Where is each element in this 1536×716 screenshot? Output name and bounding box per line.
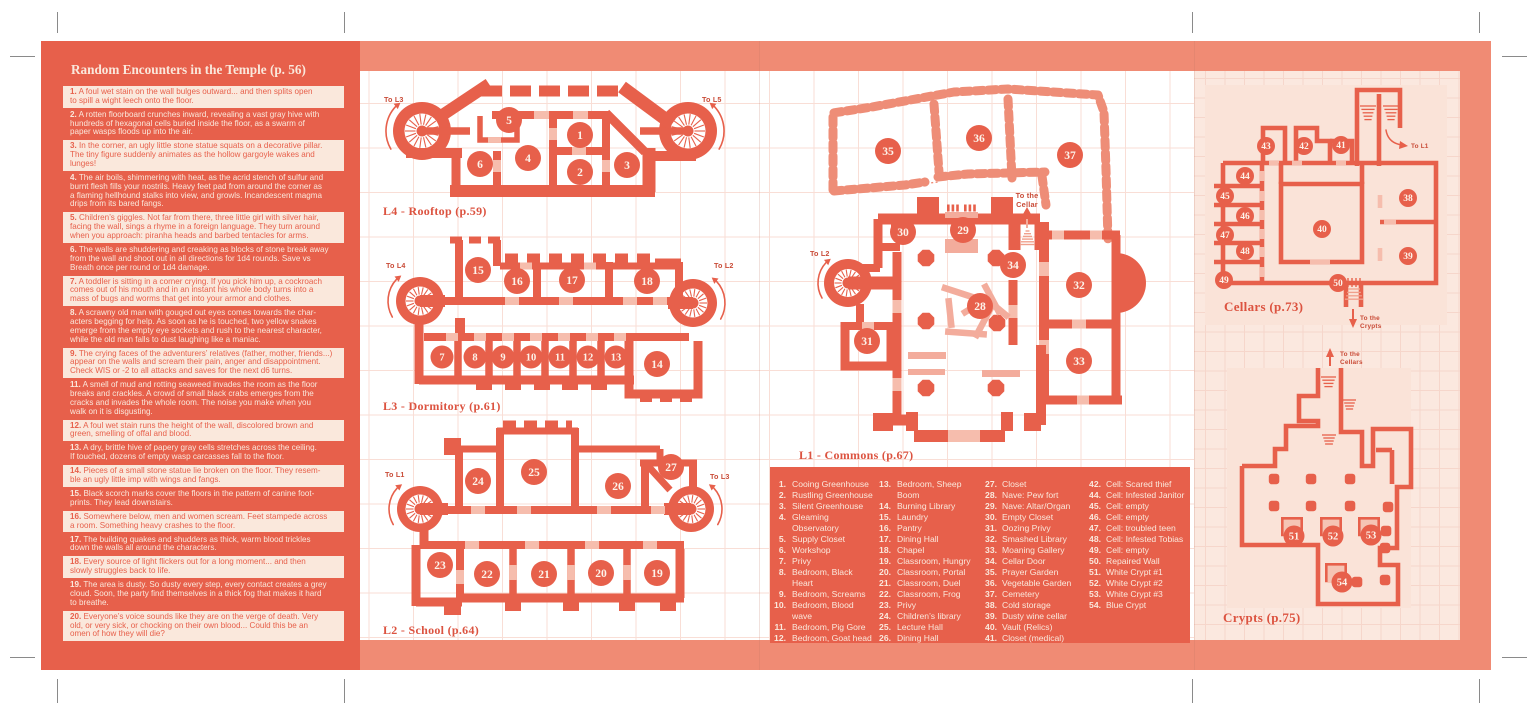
svg-text:7: 7 [439,353,444,364]
svg-text:34: 34 [1007,259,1019,272]
svg-text:50: 50 [1333,279,1343,289]
svg-text:8: 8 [472,353,477,364]
svg-text:37: 37 [1064,149,1076,162]
svg-text:23: 23 [434,559,446,572]
svg-text:21: 21 [538,568,550,581]
svg-text:6: 6 [477,158,483,171]
svg-text:25: 25 [528,466,540,479]
svg-text:To L4: To L4 [386,261,406,270]
svg-text:To L3: To L3 [710,472,730,481]
svg-text:12: 12 [583,353,594,364]
svg-text:33: 33 [1073,355,1085,368]
svg-text:15: 15 [472,264,484,277]
svg-text:2: 2 [577,166,583,179]
svg-text:16: 16 [511,275,523,288]
svg-text:11: 11 [555,353,565,364]
svg-text:54: 54 [1337,578,1348,589]
svg-text:49: 49 [1219,276,1229,286]
svg-text:3: 3 [624,159,630,172]
svg-text:44: 44 [1240,172,1250,182]
svg-text:To L1: To L1 [1411,143,1429,150]
svg-text:5: 5 [506,114,512,127]
svg-text:To the: To the [1360,315,1380,322]
svg-text:32: 32 [1073,279,1085,292]
svg-text:To L2: To L2 [810,249,830,258]
svg-text:14: 14 [651,358,663,371]
svg-text:4: 4 [525,152,531,165]
svg-text:38: 38 [1403,194,1413,204]
svg-text:51: 51 [1289,532,1300,543]
svg-text:36: 36 [973,132,985,145]
svg-text:22: 22 [481,568,493,581]
svg-text:Crypts: Crypts [1360,323,1382,330]
svg-text:42: 42 [1299,142,1309,152]
svg-text:To L5: To L5 [702,95,722,104]
svg-text:27: 27 [665,461,677,474]
svg-text:47: 47 [1220,231,1230,241]
svg-text:35: 35 [882,145,894,158]
svg-text:40: 40 [1317,225,1327,235]
svg-text:Cellars: Cellars [1340,359,1363,366]
svg-text:46: 46 [1240,212,1250,222]
svg-text:19: 19 [651,567,663,580]
svg-text:28: 28 [974,300,986,313]
svg-text:48: 48 [1240,247,1250,257]
svg-text:To the: To the [1016,191,1039,200]
svg-text:52: 52 [1328,532,1339,543]
svg-text:To L2: To L2 [714,261,734,270]
svg-text:45: 45 [1220,192,1230,202]
svg-text:43: 43 [1261,142,1271,152]
svg-text:26: 26 [612,480,624,493]
svg-text:17: 17 [566,274,578,287]
svg-text:29: 29 [957,224,969,237]
svg-text:31: 31 [861,335,873,348]
svg-text:1: 1 [577,129,583,142]
svg-text:To the: To the [1340,351,1360,358]
svg-text:To L1: To L1 [385,470,405,479]
svg-text:To L3: To L3 [384,95,404,104]
svg-text:10: 10 [526,353,537,364]
svg-text:53: 53 [1366,531,1377,542]
svg-text:39: 39 [1403,252,1413,262]
svg-text:41: 41 [1336,141,1346,151]
svg-text:20: 20 [595,567,607,580]
svg-text:18: 18 [641,275,653,288]
svg-text:30: 30 [897,226,909,239]
svg-text:9: 9 [500,353,505,364]
svg-text:13: 13 [611,353,622,364]
svg-text:24: 24 [472,475,484,488]
